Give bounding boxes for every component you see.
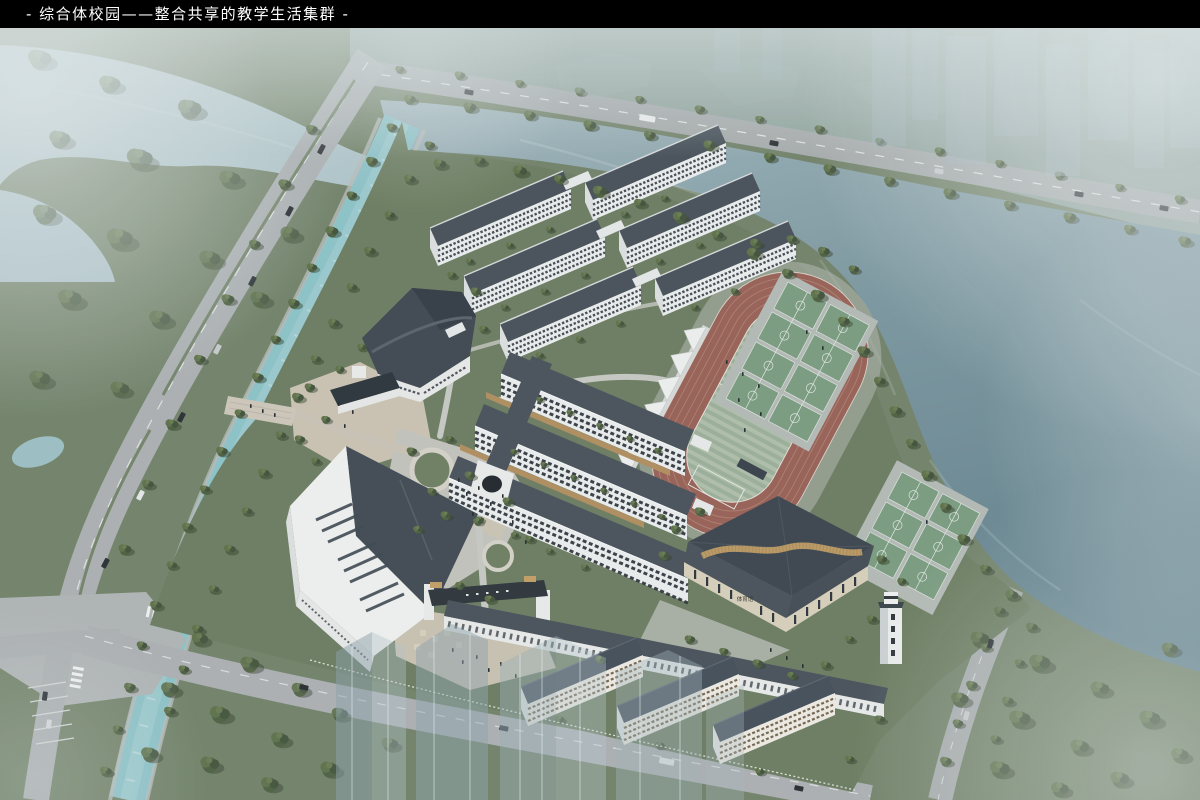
page-title: - 综合体校园——整合共享的教学生活集群 -: [0, 0, 349, 28]
rendering-canvas: 体育馆: [0, 0, 1200, 800]
title-bar: - 综合体校园——整合共享的教学生活集群 -: [0, 0, 1200, 28]
architectural-rendering-page: 体育馆: [0, 0, 1200, 800]
mist: [0, 0, 1200, 800]
